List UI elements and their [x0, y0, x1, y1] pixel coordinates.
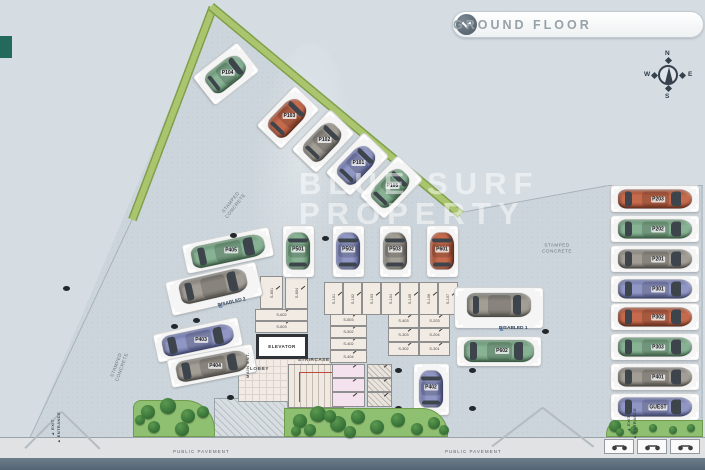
storage-unit-label: S-502: [343, 330, 353, 334]
car-glass: [671, 251, 681, 267]
parking-spot-P301: P301: [611, 276, 699, 302]
exit-entrance-label-0: ▲ EXIT ▲ ENTRANCE: [50, 412, 61, 443]
plan-edge-3: [702, 186, 703, 438]
car-P301: P301: [618, 280, 692, 299]
car-P402: P402: [419, 371, 443, 408]
storage-unit-label: S-602: [276, 313, 286, 317]
spot-corner-mark: [167, 282, 175, 290]
bush-12: [391, 413, 405, 427]
storage-unit: [367, 392, 392, 407]
parking-spot-P202: P202: [611, 216, 699, 242]
bush-14: [428, 417, 440, 429]
storage-unit-S-302: S-302: [388, 342, 419, 356]
car-plate-label: P302: [651, 314, 665, 320]
disabled-spot-label: DISABLED 1: [499, 326, 528, 331]
car-glass: [625, 370, 632, 385]
bike-parking-2: [670, 439, 700, 454]
compass-east: E: [688, 71, 692, 78]
spot-corner-mark: [450, 269, 457, 276]
scooter-icon: [644, 442, 661, 451]
bush-19: [439, 425, 449, 435]
car-P302: P302: [618, 308, 692, 327]
spot-corner-mark: [231, 44, 241, 54]
compass-west: W: [644, 71, 650, 78]
storage-unit-label: S-603: [276, 325, 286, 329]
storage-unit-S-104: S-104: [381, 282, 400, 315]
door-tick: [407, 342, 412, 346]
storage-unit-S-203: S-203: [419, 314, 450, 328]
car-plate-label: P601: [435, 247, 449, 253]
car-P503: P503: [383, 233, 407, 270]
spot-corner-mark: [247, 263, 255, 271]
parking-spot-P402: P402: [414, 364, 449, 415]
spot-corner-mark: [691, 234, 698, 241]
car-glass: [625, 340, 632, 355]
compass-north: N: [665, 50, 670, 57]
door-tick: [413, 291, 418, 295]
car-plate-label: P501: [291, 247, 305, 253]
car-glass: [671, 309, 681, 325]
car-plate-label: P201: [651, 256, 665, 262]
bush-18: [324, 410, 336, 422]
storage-unit-S-404: S-404: [330, 350, 367, 363]
spot-corner-mark: [258, 120, 268, 130]
car-glass: [226, 271, 239, 292]
bush-15: [291, 426, 301, 436]
storage-unit-label: S-301: [429, 347, 439, 351]
spot-corner-mark: [265, 247, 273, 255]
door-tick: [407, 314, 412, 318]
car-plate-label: P103: [282, 113, 296, 119]
storage-unit-label: S-303: [398, 333, 408, 337]
spot-corner-mark: [535, 320, 542, 327]
car-glass: [513, 295, 521, 315]
car-glass: [432, 238, 452, 243]
parking-spot-P203: P203: [611, 186, 699, 212]
bush-13: [411, 423, 423, 435]
door-tick: [300, 285, 305, 289]
car-glass: [671, 191, 681, 207]
storage-unit-S-101: S-101: [324, 282, 343, 315]
door-tick: [438, 314, 443, 318]
spot-corner-mark: [381, 269, 388, 276]
bush-16: [344, 426, 356, 438]
spot-corner-mark: [260, 228, 268, 236]
car-glass: [289, 262, 308, 266]
car-glass: [421, 376, 441, 381]
storage-unit-S-502: S-502: [330, 326, 367, 338]
car-plate-label: P401: [651, 374, 665, 380]
spot-corner-mark: [306, 269, 313, 276]
car-plate-label: P602: [495, 348, 509, 354]
car-glass: [433, 262, 452, 266]
car-glass: [625, 252, 632, 267]
car-plate-label: P403: [194, 336, 208, 342]
door-tick: [383, 392, 388, 396]
car-plate-label: P102: [317, 137, 331, 143]
storage-unit-label: S-601: [270, 287, 274, 297]
spot-corner-mark: [194, 73, 204, 83]
bush-25: [616, 428, 624, 436]
bush-24: [687, 424, 695, 432]
spot-corner-mark: [356, 269, 363, 276]
spot-corner-mark: [441, 365, 448, 372]
spot-corner-mark: [691, 335, 698, 342]
bush-10: [351, 410, 365, 424]
bike-parking-0: [604, 439, 634, 454]
storage-unit-S-604: S-604: [285, 276, 308, 309]
door-tick: [352, 364, 357, 368]
spot-corner-mark: [691, 412, 698, 419]
bush-22: [649, 424, 657, 432]
parking-spot-P602: P602: [457, 337, 541, 366]
storage-unit-label: S-107: [446, 293, 450, 303]
spot-corner-mark: [456, 320, 463, 327]
storage-unit-label: S-302: [398, 347, 408, 351]
door-tick: [438, 342, 443, 346]
spot-corner-mark: [612, 412, 619, 419]
spot-corner-mark: [284, 269, 291, 276]
spot-corner-mark: [691, 264, 698, 271]
storage-unit-S-503: S-503: [330, 314, 367, 326]
storage-unit: [332, 392, 365, 407]
parking-spot-P501: P501: [283, 226, 314, 277]
column-dot-3: [193, 318, 200, 323]
parking-spot-P502: P502: [333, 226, 364, 277]
door-tick: [352, 326, 357, 329]
storage-unit-label: S-103: [370, 293, 374, 303]
bush-11: [370, 420, 384, 434]
car-glass: [167, 337, 177, 355]
car-glass: [671, 281, 681, 297]
scooter-icon: [677, 442, 694, 451]
storage-unit-label: S-203: [429, 319, 439, 323]
car-P602: P602: [464, 340, 534, 362]
spot-corner-mark: [293, 144, 303, 154]
storage-unit-label: S-204: [429, 333, 439, 337]
car-glass: [386, 262, 405, 266]
storage-unit: [332, 378, 365, 392]
car-glass: [671, 399, 681, 415]
main-entrance-label: MAIN ENT.: [245, 353, 250, 378]
column-dot-6: [542, 329, 549, 334]
spot-corner-mark: [535, 289, 542, 296]
spot-corner-mark: [233, 337, 241, 345]
bike-parking-1: [637, 439, 667, 454]
door-tick: [352, 350, 357, 353]
spot-corner-mark: [458, 358, 465, 365]
storage-unit-S-603: S-603: [255, 321, 308, 333]
car-roof: [488, 295, 511, 315]
staircase-path: [299, 372, 333, 402]
spot-corner-mark: [612, 294, 619, 301]
column-dot-0: [230, 233, 237, 238]
door-tick: [383, 364, 388, 368]
stamped-concrete-label-1: STAMPED CONCRETE: [542, 242, 572, 253]
door-tick: [352, 378, 357, 382]
logo-corner-fragment: [0, 36, 12, 58]
compass-point-w: [651, 71, 658, 78]
bush-1: [160, 398, 176, 414]
door-tick: [356, 291, 361, 295]
staircase-label: STAIRCASE: [298, 357, 330, 362]
column-dot-10: [469, 406, 476, 411]
floor-selector[interactable]: GROUND FLOOR: [452, 11, 704, 38]
public-pavement-label-0: PUBLIC PAVEMENT: [173, 449, 230, 454]
bush-5: [197, 406, 209, 418]
bush-2: [181, 409, 195, 423]
car-plate-label: P404: [208, 362, 222, 368]
door-tick: [375, 291, 380, 295]
car-glass: [181, 362, 191, 379]
car-plate-label: P202: [651, 226, 665, 232]
spot-corner-mark: [691, 294, 698, 301]
public-pavement: [0, 437, 705, 458]
storage-unit-S-403: S-403: [388, 314, 419, 328]
car-glass: [514, 342, 523, 360]
car-glass: [473, 295, 479, 314]
door-tick: [352, 338, 357, 341]
car-plate-label: P303: [651, 344, 665, 350]
car-P201: P201: [618, 250, 692, 269]
storage-unit-S-105: S-105: [400, 282, 419, 315]
watermark-line2: PROPERTY: [299, 196, 526, 232]
parking-spot-P601: P601: [427, 226, 458, 277]
car-P203: P203: [618, 190, 692, 209]
car-roof: [200, 274, 228, 299]
storage-unit-S-106: S-106: [419, 282, 438, 315]
car-P502: P502: [336, 233, 360, 270]
spot-corner-mark: [253, 288, 261, 296]
scooter-icon: [611, 442, 628, 451]
spot-corner-mark: [334, 269, 341, 276]
storage-unit-label: S-105: [408, 293, 412, 303]
door-tick: [352, 314, 357, 317]
parking-spot-DISABLED-1: ♿ DISABLED 1: [455, 288, 543, 328]
storage-unit-S-204: S-204: [419, 328, 450, 342]
door-tick: [285, 309, 290, 312]
spot-corner-mark: [691, 247, 698, 254]
car-plate-label: GUEST: [648, 404, 667, 410]
car-glass: [625, 222, 632, 237]
spot-corner-mark: [284, 227, 291, 234]
storage-unit: [367, 364, 392, 378]
spot-corner-mark: [691, 365, 698, 372]
parking-spot-P303: P303: [611, 334, 699, 360]
spot-corner-mark: [612, 382, 619, 389]
door-tick: [337, 291, 342, 295]
spot-corner-mark: [691, 352, 698, 359]
car-plate-label: P405: [224, 246, 238, 252]
storage-unit-label: S-503: [343, 318, 353, 322]
car-glass: [197, 246, 208, 264]
storage-unit-label: S-403: [398, 319, 408, 323]
car-glass: [625, 192, 632, 207]
car-plate-label: P104: [220, 70, 234, 76]
spot-corner-mark: [428, 269, 435, 276]
car-glass: [288, 238, 308, 243]
lobby-label: LOBBY: [250, 366, 269, 371]
spot-corner-mark: [691, 204, 698, 211]
car-glass: [242, 236, 255, 256]
car-glass: [470, 342, 477, 359]
bush-4: [175, 422, 189, 436]
car-plate-label: P301: [651, 286, 665, 292]
car-DISABLED-1: [467, 293, 531, 317]
car-plate-label: P402: [424, 385, 438, 391]
car-plate-label: P101: [351, 160, 365, 166]
storage-unit-S-602: S-602: [255, 309, 308, 321]
storage-unit-label: S-404: [343, 355, 353, 359]
door-tick: [407, 328, 412, 332]
spot-corner-mark: [172, 306, 180, 314]
door-tick: [432, 291, 437, 295]
storage-unit-S-601: S-601: [260, 276, 283, 309]
door-tick: [438, 328, 443, 332]
storage-unit-S-301: S-301: [419, 342, 450, 356]
storage-unit-label: S-604: [295, 287, 299, 297]
bush-6: [135, 415, 145, 425]
door-tick: [275, 285, 280, 289]
spot-corner-mark: [612, 322, 619, 329]
column-dot-1: [322, 236, 329, 241]
spot-corner-mark: [691, 305, 698, 312]
spot-corner-mark: [403, 269, 410, 276]
elevator: ELEVATOR: [256, 334, 308, 359]
column-dot-5: [63, 286, 70, 291]
parking-spot-P302: P302: [611, 304, 699, 330]
parking-spot-P401: P401: [611, 364, 699, 390]
storage-unit-S-402: S-402: [330, 338, 367, 350]
car-plate-label: P502: [341, 247, 355, 253]
car-glass: [671, 339, 681, 355]
car-glass: [671, 221, 681, 237]
storage-unit-S-102: S-102: [343, 282, 362, 315]
spot-corner-mark: [230, 319, 238, 327]
storage-unit-S-303: S-303: [388, 328, 419, 342]
compass-point-n: [664, 57, 671, 64]
car-glass: [212, 326, 225, 345]
spot-corner-mark: [533, 338, 540, 345]
storage-unit-S-103: S-103: [362, 282, 381, 315]
car-plate-label: P503: [388, 247, 402, 253]
compass-rose: N E S W: [644, 50, 694, 102]
compass-point-s: [664, 85, 671, 92]
spot-corner-mark: [612, 264, 619, 271]
bush-17: [304, 424, 316, 436]
column-dot-2: [171, 324, 178, 329]
car-P501: P501: [286, 233, 310, 270]
door-tick: [394, 291, 399, 295]
spot-corner-mark: [691, 382, 698, 389]
car-P202: P202: [618, 220, 692, 239]
storage-unit-label: S-101: [332, 293, 336, 303]
bush-3: [148, 421, 160, 433]
spot-corner-mark: [612, 234, 619, 241]
compass-point-e: [679, 71, 686, 78]
bush-23: [669, 426, 677, 434]
car-glass: [671, 369, 681, 385]
storage-unit-label: S-104: [389, 293, 393, 303]
car-glass: [385, 238, 405, 243]
column-dot-4: [227, 395, 234, 400]
parking-spot-P503: P503: [380, 226, 411, 277]
spot-corner-mark: [612, 204, 619, 211]
main-entrance-forecourt: [214, 398, 288, 437]
storage-unit: [367, 378, 392, 392]
spot-corner-mark: [691, 322, 698, 329]
ground-floor-plan: BLUE SURF PROPERTY GROUND FLOOR N E S W …: [0, 0, 705, 470]
spot-corner-mark: [691, 217, 698, 224]
car-glass: [226, 353, 238, 372]
spot-corner-mark: [691, 277, 698, 284]
spot-corner-mark: [533, 358, 540, 365]
storage-unit: [332, 364, 365, 378]
spot-corner-mark: [415, 365, 422, 372]
car-P601: P601: [430, 233, 454, 270]
car-glass: [184, 282, 195, 302]
storage-unit-label: S-402: [343, 342, 353, 346]
spot-corner-mark: [612, 352, 619, 359]
car-P303: P303: [618, 338, 692, 357]
spot-corner-mark: [691, 187, 698, 194]
page-title: GROUND FLOOR: [453, 18, 592, 32]
elevator-label: ELEVATOR: [268, 344, 295, 349]
door-tick: [352, 392, 357, 396]
spot-corner-mark: [456, 289, 463, 296]
spot-corner-mark: [441, 407, 448, 414]
door-tick: [285, 321, 290, 324]
storage-unit-label: S-102: [351, 293, 355, 303]
car-glass: [339, 262, 358, 266]
storage-unit-label: S-106: [427, 293, 431, 303]
car-P401: P401: [618, 368, 692, 387]
public-pavement-label-1: PUBLIC PAVEMENT: [445, 449, 502, 454]
spot-corner-mark: [691, 395, 698, 402]
door-tick: [383, 378, 388, 382]
car-glass: [625, 310, 632, 325]
column-dot-7: [395, 368, 402, 373]
car-glass: [625, 282, 632, 297]
road: [0, 458, 705, 470]
car-glass: [422, 400, 441, 404]
compass-south: S: [665, 93, 669, 100]
car-plate-label: P203: [651, 196, 665, 202]
parking-spot-P201: P201: [611, 246, 699, 272]
parking-spot-GUEST: GUEST: [611, 394, 699, 420]
column-dot-8: [469, 368, 476, 373]
compass-needle: [665, 67, 673, 83]
car-glass: [338, 238, 358, 243]
exit-entrance-label-1: ▲ EXIT ▲ ENTRANCE: [626, 408, 637, 439]
